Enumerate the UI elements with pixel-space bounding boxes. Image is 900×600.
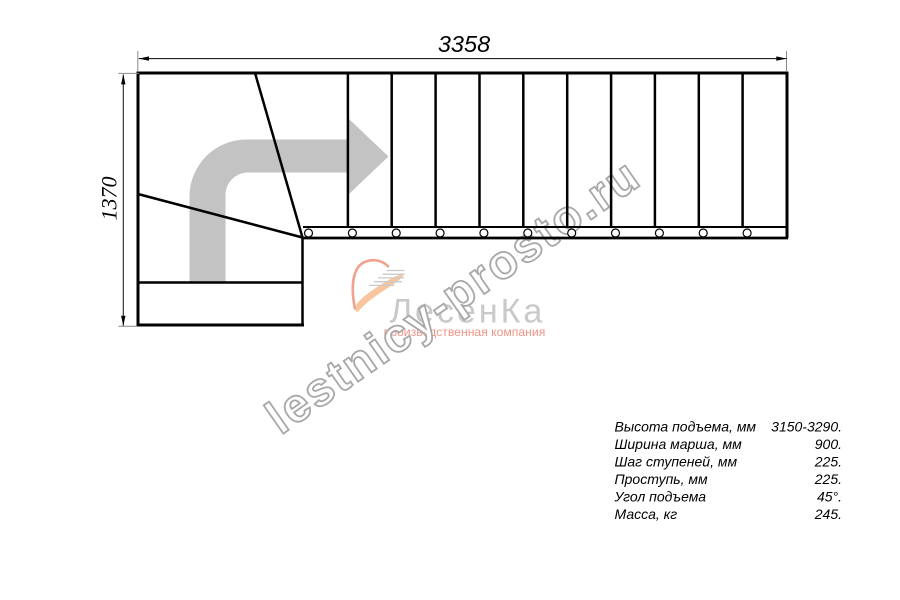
svg-text:3358: 3358 bbox=[438, 31, 490, 57]
svg-text:245.: 245. bbox=[814, 506, 842, 522]
svg-text:45°.: 45°. bbox=[817, 489, 842, 505]
svg-text:Масса, кг: Масса, кг bbox=[615, 506, 678, 522]
svg-text:225.: 225. bbox=[814, 454, 842, 470]
svg-text:225.: 225. bbox=[814, 471, 842, 487]
svg-text:Проступь, мм: Проступь, мм bbox=[615, 471, 709, 487]
svg-text:Угол подъема: Угол подъема bbox=[614, 489, 707, 505]
svg-text:Высота подъема, мм: Высота подъема, мм bbox=[615, 419, 757, 435]
svg-text:900.: 900. bbox=[815, 436, 842, 452]
svg-text:Шаг ступеней, мм: Шаг ступеней, мм bbox=[615, 454, 738, 470]
svg-text:lestnicy-prosto.ru: lestnicy-prosto.ru bbox=[257, 148, 651, 444]
svg-text:1370: 1370 bbox=[97, 177, 122, 221]
svg-text:3150-3290.: 3150-3290. bbox=[771, 419, 842, 435]
svg-text:Ширина марша, мм: Ширина марша, мм bbox=[615, 436, 743, 452]
